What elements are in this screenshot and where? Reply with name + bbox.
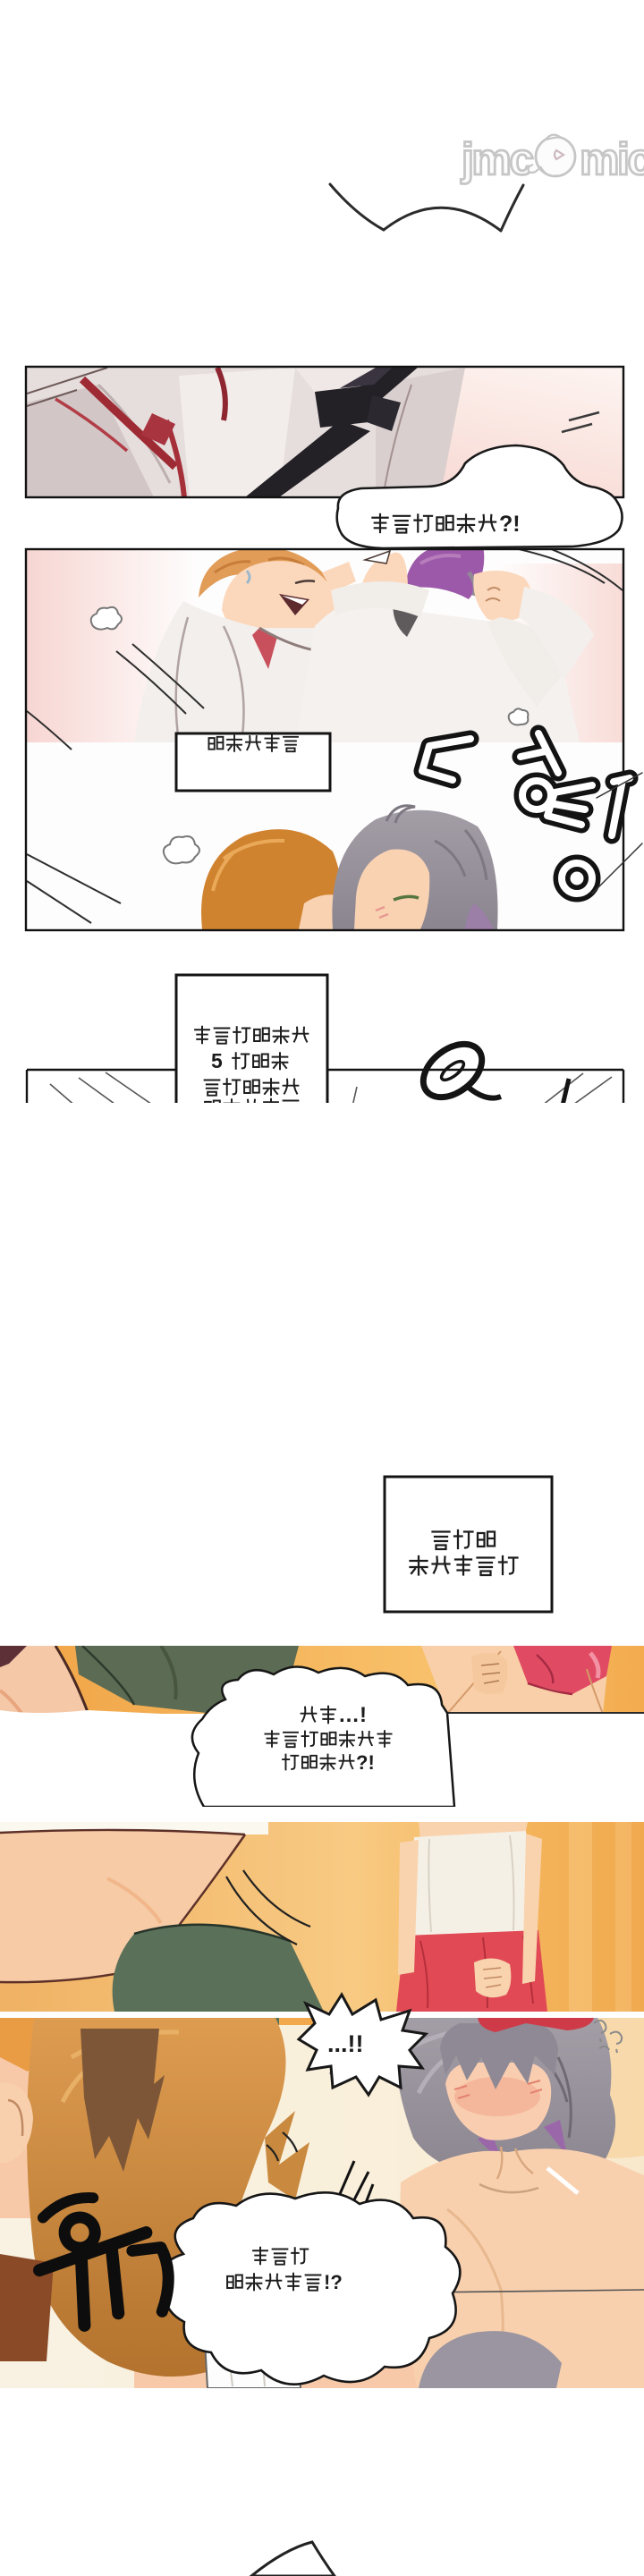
svg-text:?!: ?!	[356, 1751, 375, 1774]
svg-text:5: 5	[211, 1049, 223, 1072]
svg-text:jmc: jmc	[461, 134, 533, 184]
svg-text:mic: mic	[580, 134, 644, 184]
svg-text:?!: ?!	[499, 512, 521, 537]
svg-text:...!!: ...!!	[327, 2030, 364, 2057]
svg-text:!?: !?	[324, 2271, 343, 2293]
svg-text:…!: …!	[338, 1703, 367, 1727]
